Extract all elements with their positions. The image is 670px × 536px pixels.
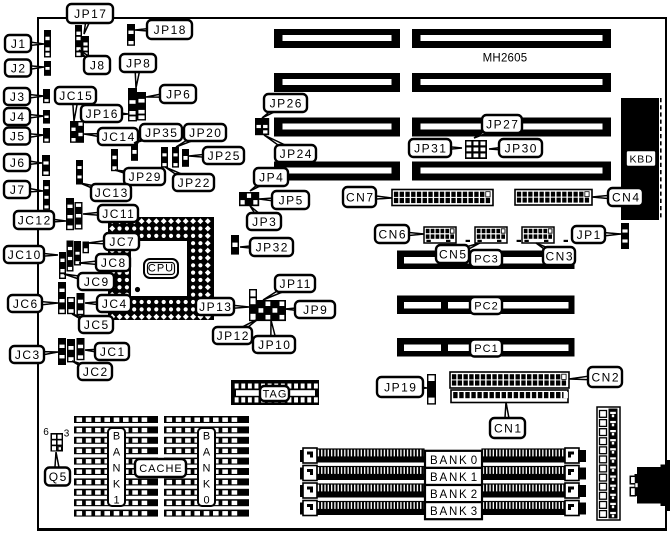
svg-text:JC15: JC15 xyxy=(59,89,93,103)
svg-text:JC1: JC1 xyxy=(100,345,126,359)
svg-text:JP18: JP18 xyxy=(154,23,187,37)
svg-text:JP20: JP20 xyxy=(189,126,222,140)
svg-text:J3: J3 xyxy=(10,90,26,104)
svg-text:JP26: JP26 xyxy=(270,96,303,110)
svg-text:PC1: PC1 xyxy=(474,343,498,355)
svg-text:B: B xyxy=(113,431,120,443)
svg-text:CPU: CPU xyxy=(148,263,174,275)
svg-text:J6: J6 xyxy=(10,156,26,170)
svg-text:JC10: JC10 xyxy=(8,248,42,262)
svg-text:N: N xyxy=(203,463,211,475)
svg-text:JP6: JP6 xyxy=(166,87,191,101)
svg-text:CACHE: CACHE xyxy=(139,463,183,475)
svg-text:JC7: JC7 xyxy=(109,235,135,249)
svg-text:JP12: JP12 xyxy=(217,329,250,343)
svg-text:JC11: JC11 xyxy=(102,207,135,221)
svg-text:JC13: JC13 xyxy=(95,186,129,200)
svg-text:PC2: PC2 xyxy=(474,300,498,312)
svg-text:J8: J8 xyxy=(90,58,106,72)
svg-text:JC3: JC3 xyxy=(15,348,41,362)
svg-text:Q5: Q5 xyxy=(49,470,68,484)
svg-text:K: K xyxy=(113,479,121,491)
svg-text:JP11: JP11 xyxy=(280,277,312,291)
svg-text:3: 3 xyxy=(471,506,477,518)
svg-text:JP8: JP8 xyxy=(126,56,151,70)
svg-text:JC14: JC14 xyxy=(102,130,136,144)
svg-text:3: 3 xyxy=(64,429,70,440)
svg-text:JP30: JP30 xyxy=(505,141,538,155)
svg-text:CN1: CN1 xyxy=(494,421,523,435)
svg-text:K: K xyxy=(203,479,211,491)
svg-text:TAG: TAG xyxy=(263,388,288,400)
svg-text:JP13: JP13 xyxy=(199,300,232,314)
svg-text:JP27: JP27 xyxy=(486,117,519,131)
svg-text:CN7: CN7 xyxy=(346,190,375,204)
svg-text:JP1: JP1 xyxy=(577,228,602,242)
svg-text:JC8: JC8 xyxy=(101,256,127,270)
svg-text:JP24: JP24 xyxy=(280,147,313,161)
svg-text:6: 6 xyxy=(43,427,49,438)
svg-text:JP4: JP4 xyxy=(259,170,284,184)
svg-text:JP25: JP25 xyxy=(208,149,241,163)
svg-text:A: A xyxy=(113,447,121,459)
svg-text:JP16: JP16 xyxy=(86,107,119,121)
svg-text:JP29: JP29 xyxy=(129,170,162,184)
svg-text:CN5: CN5 xyxy=(439,247,468,261)
svg-text:JC6: JC6 xyxy=(13,297,39,311)
svg-text:MH2605: MH2605 xyxy=(483,53,528,65)
svg-text:PC3: PC3 xyxy=(474,253,498,265)
svg-text:CN4: CN4 xyxy=(612,190,641,204)
svg-text:JC9: JC9 xyxy=(84,275,110,289)
svg-text:JP31: JP31 xyxy=(414,141,447,155)
svg-text:J4: J4 xyxy=(10,110,26,124)
svg-text:CN3: CN3 xyxy=(545,249,574,263)
svg-text:J5: J5 xyxy=(10,129,26,143)
svg-text:JP22: JP22 xyxy=(178,176,211,190)
svg-text:CN2: CN2 xyxy=(591,370,620,384)
svg-text:JP9: JP9 xyxy=(303,303,328,317)
svg-text:BANK: BANK xyxy=(430,455,469,467)
svg-text:JP35: JP35 xyxy=(145,126,178,140)
svg-text:JC4: JC4 xyxy=(102,297,128,311)
svg-text:2: 2 xyxy=(471,489,477,501)
svg-text:0: 0 xyxy=(203,495,209,507)
svg-text:BANK: BANK xyxy=(430,472,469,484)
svg-text:1: 1 xyxy=(471,472,477,484)
svg-text:B: B xyxy=(203,431,210,443)
svg-text:JP32: JP32 xyxy=(256,240,289,254)
svg-text:J2: J2 xyxy=(11,61,27,75)
svg-text:JC12: JC12 xyxy=(18,213,52,227)
svg-text:BANK: BANK xyxy=(430,506,469,518)
svg-text:JP5: JP5 xyxy=(279,193,304,207)
svg-text:JC5: JC5 xyxy=(84,318,110,332)
svg-text:JP10: JP10 xyxy=(258,338,291,352)
svg-text:A: A xyxy=(203,447,211,459)
svg-text:KBD: KBD xyxy=(630,154,654,166)
svg-text:JP19: JP19 xyxy=(384,380,417,394)
svg-text:JC2: JC2 xyxy=(83,365,109,379)
svg-text:J7: J7 xyxy=(10,183,26,197)
svg-text:CN6: CN6 xyxy=(378,227,407,241)
svg-text:BANK: BANK xyxy=(430,489,469,501)
svg-text:JP3: JP3 xyxy=(252,215,277,229)
svg-text:0: 0 xyxy=(471,455,477,467)
svg-text:JP17: JP17 xyxy=(74,7,107,21)
svg-text:J1: J1 xyxy=(11,37,27,51)
svg-text:N: N xyxy=(113,463,121,475)
svg-text:1: 1 xyxy=(113,495,119,507)
